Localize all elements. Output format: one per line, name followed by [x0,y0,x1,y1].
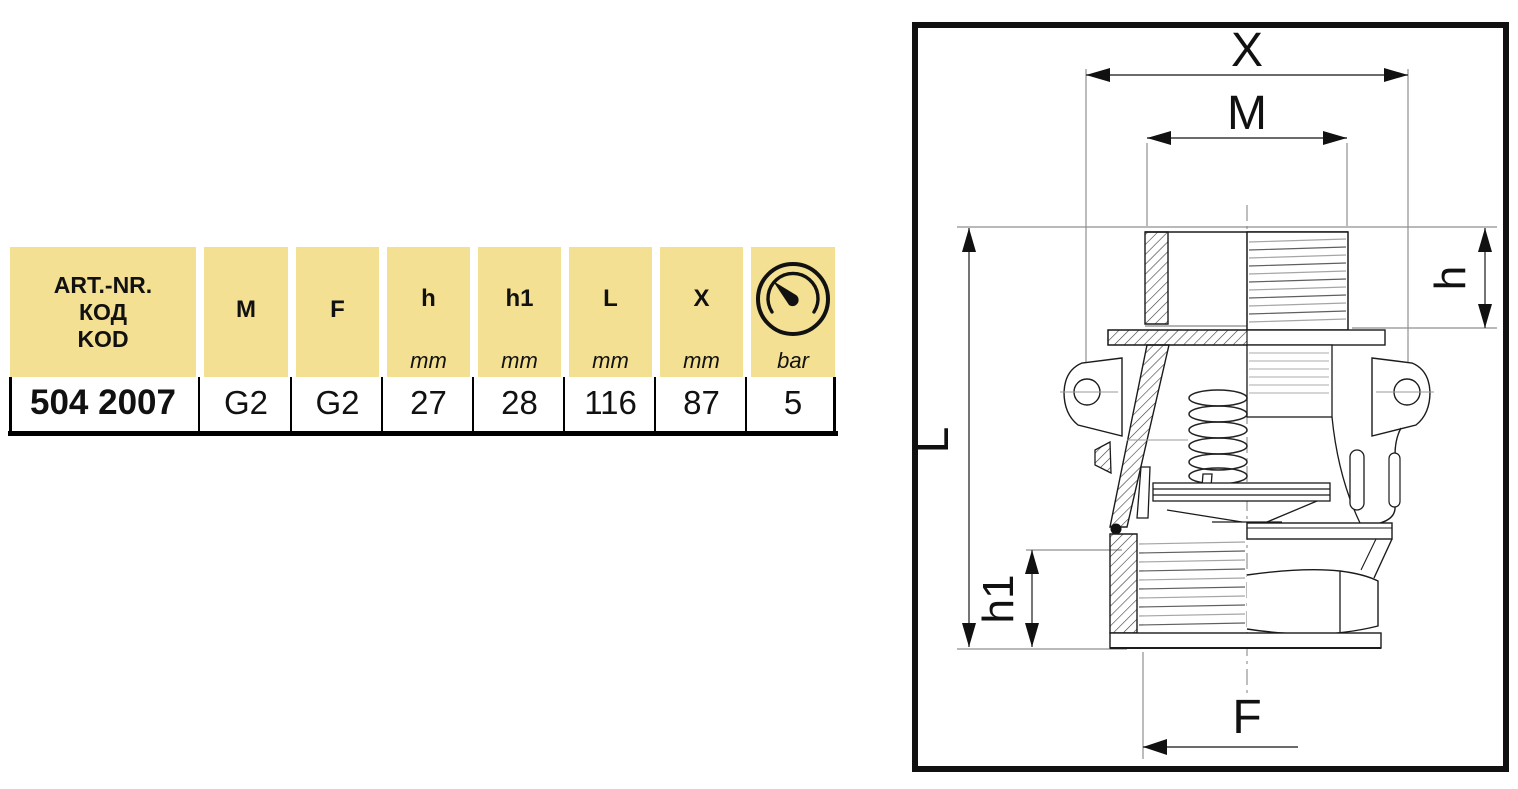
cell-L-value: 116 [569,377,652,431]
cell-art-nr: 504 2007 [10,377,196,431]
spigot-section-wall [1145,232,1168,324]
row-separator [381,377,383,431]
art-nr-line-1: ART.-NR. [54,272,152,299]
cell-F-value: G2 [296,377,379,431]
male-thread [1247,232,1348,330]
header-cell-art-nr: ART.-NR. КОД KOD [10,247,196,377]
valve-cross-section-drawing: X M L h h1 F [912,22,1509,772]
header-cell-X: X mm [660,247,743,377]
hex-nut-exterior [1247,523,1392,634]
technical-drawing-frame: X M L h h1 F [912,22,1509,772]
body-rib [1095,442,1111,473]
cell-h-value: 27 [387,377,470,431]
column-unit-L: mm [592,350,629,377]
row-separator [563,377,565,431]
column-unit-h: mm [410,350,447,377]
header-cell-h: h mm [387,247,470,377]
base-plate [1110,633,1381,648]
row-separator [654,377,656,431]
header-cell-L: L mm [569,247,652,377]
row-border-bottom [8,431,838,436]
dimension-label-h: h [1426,266,1475,290]
nut-section-wall [1110,534,1137,633]
art-nr-line-3: KOD [77,326,128,353]
column-label-h: h [421,287,436,311]
column-unit-bar: bar [777,350,809,377]
header-cell-h1: h1 mm [478,247,561,377]
column-label-F: F [330,298,345,322]
female-thread [1139,542,1245,625]
o-ring [1111,524,1122,535]
pressure-gauge-icon [753,259,833,339]
valve-internals [1127,440,1330,522]
catalog-page: { "table": { "art_header_lines": ["ART.-… [0,0,1518,789]
row-separator [198,377,200,431]
cell-X-value: 87 [660,377,743,431]
art-nr-line-2: КОД [79,299,127,326]
cell-bar-value: 5 [751,377,835,431]
header-cell-pressure: bar [751,247,835,377]
row-separator [745,377,747,431]
dimension-table: ART.-NR. КОД KOD M F h mm h1 mm L mm X m… [10,247,835,437]
dimension-label-h1: h1 [974,575,1023,624]
dimension-label-M: M [1227,87,1267,140]
dimension-label-X: X [1231,24,1263,77]
row-separator [290,377,292,431]
header-cell-F: F [296,247,379,377]
column-label-M: M [236,298,256,322]
row-separator [472,377,474,431]
column-unit-X: mm [683,350,720,377]
cell-h1-value: 28 [478,377,561,431]
dimension-label-F: F [1232,691,1261,744]
column-label-L: L [603,287,618,311]
header-cell-M: M [204,247,288,377]
dimension-label-L: L [912,427,959,454]
cell-M-value: G2 [204,377,288,431]
column-unit-h1: mm [501,350,538,377]
spring [1189,390,1247,484]
column-label-X: X [693,287,709,311]
flange-section [1108,330,1247,345]
column-label-h1: h1 [505,287,533,311]
